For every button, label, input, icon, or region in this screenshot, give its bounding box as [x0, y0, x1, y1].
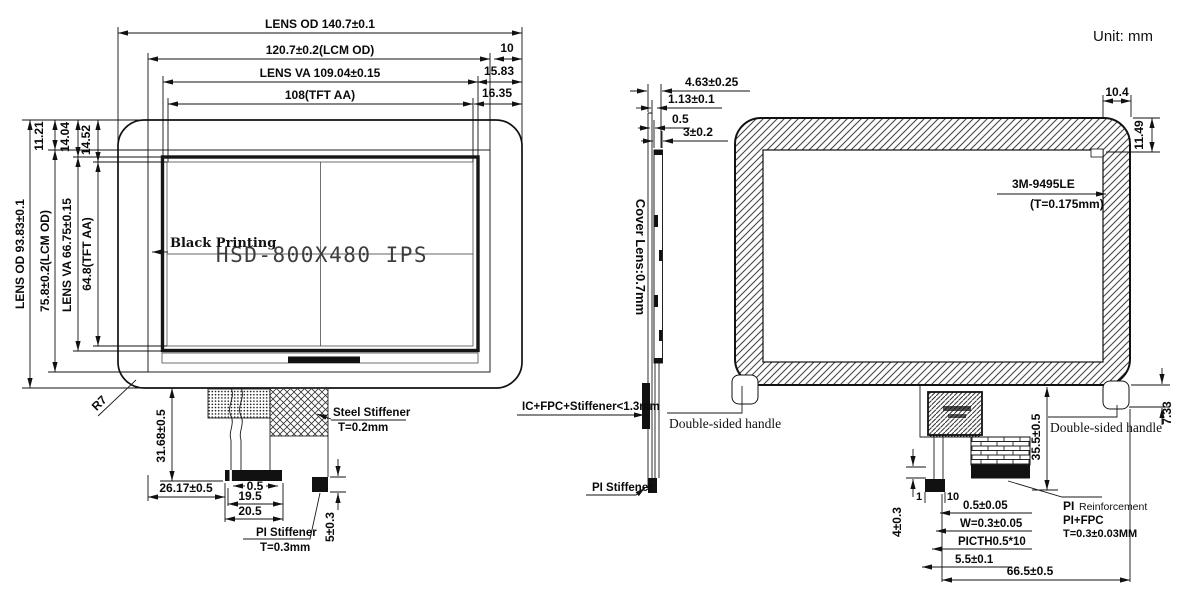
pi-stiffener-block [312, 477, 328, 492]
dim-fpc-offset: 26.17±0.5 [159, 481, 213, 495]
dim-fold: 4±0.3 [890, 507, 904, 537]
dim-pin-width: 0.5±0.05 [963, 500, 1008, 512]
front-top-dimensions: LENS OD 140.7±0.1 120.7±0.2(LCM OD) 10 L… [118, 17, 522, 162]
corner-radius-label: R7 [89, 393, 110, 414]
alignment-notch [1091, 149, 1103, 157]
dim-lcm-thickness: 1.13±0.1 [668, 92, 715, 106]
ic-block [208, 389, 270, 418]
pin-10-label: 10 [947, 491, 959, 503]
dim-contact-width: 19.5 [238, 489, 262, 503]
black-printing-label: Black Printing [170, 236, 276, 251]
handle-left-callout: Double-sided handle [667, 386, 781, 431]
pi-reinforcement-label-2: Reinforcement [1079, 501, 1147, 513]
steel-stiffener-callout: Steel Stiffener T=0.2mm [317, 407, 411, 434]
steel-stiffener-label: Steel Stiffener [333, 407, 411, 419]
fpc-height-dimension: 35.5±0.5 [1029, 387, 1058, 490]
pi-reinforcement-label-1: PI [1063, 499, 1074, 513]
steel-stiffener-block [270, 388, 328, 436]
dim-border-height: 11.49 [1132, 120, 1146, 150]
dim-trace-width: W=0.3±0.05 [960, 518, 1023, 530]
connector-slot [230, 470, 232, 481]
dim-fpc-height: 35.5±0.5 [1029, 413, 1043, 460]
dim-module-thickness: 3±0.2 [683, 125, 713, 139]
dim-fpc-center: 66.5±0.5 [1007, 564, 1054, 578]
dim-lens-od-height: LENS OD 93.83±0.1 [13, 199, 27, 309]
pi-stiffener-label: PI Stiffener [256, 527, 317, 539]
dim-total-thickness: 4.63±0.25 [685, 75, 739, 89]
side-pi-stiffener-label: PI Stiffener [592, 482, 653, 494]
dim-tft-aa-height: 64.8(TFT AA) [80, 217, 94, 291]
back-view: 1 10 10.4 11.49 3M-9495LE (T=0.175mm) Do… [667, 85, 1174, 582]
dim-lens-va-height: LENS VA 66.75±0.15 [60, 198, 74, 312]
dim-offset-1583: 15.83 [484, 64, 514, 78]
pi-thickness-label: T=0.3±0.03MM [1063, 528, 1137, 540]
fpc-contact-block [925, 479, 945, 492]
unit-label: Unit: mm [1093, 28, 1153, 45]
dim-offset-1452: 14.52 [79, 125, 93, 155]
handle-right-callout: Double-sided handle [1048, 405, 1162, 435]
dim-gap: 0.5 [672, 112, 689, 126]
handle-left-label: Double-sided handle [669, 416, 781, 431]
fpc-brick-block [971, 437, 1030, 465]
dim-pitch: PICTH0.5*10 [958, 536, 1026, 548]
dim-fpc-length: 31.68±0.5 [154, 409, 168, 463]
pi-stiffener-thickness: T=0.3mm [260, 542, 310, 554]
steel-stiffener-thickness: T=0.2mm [338, 422, 388, 434]
dim-lcm-od-width: 120.7±0.2(LCM OD) [266, 43, 375, 57]
fpc-black-strip [971, 466, 1030, 479]
pin-1-label: 1 [916, 491, 922, 503]
pi-fpc-label: PI+FPC [1063, 515, 1104, 527]
handle-tab-left [732, 375, 758, 404]
tape-thickness: (T=0.175mm) [1030, 197, 1104, 211]
dim-offset-1404: 14.04 [58, 122, 72, 152]
front-left-dimensions: LENS OD 93.83±0.1 75.8±0.2(LCM OD) 11.21… [13, 120, 167, 388]
back-fpc-assembly: 1 10 [916, 385, 1030, 503]
handle-drop-dimension: 7.33 [1129, 368, 1174, 425]
dim-handle-drop: 7.33 [1160, 401, 1174, 425]
drawing-sheet: HSD-800X480 IPS LENS OD 140.7±0.1 120.7±… [0, 0, 1200, 596]
handle-tab-right [1103, 381, 1129, 409]
dim-tail-offset: 5.5±0.1 [955, 554, 994, 566]
front-view: HSD-800X480 IPS LENS OD 140.7±0.1 120.7±… [13, 17, 522, 554]
dim-offset-1635: 16.35 [482, 86, 512, 100]
dim-stiffener-height: 5±0.3 [323, 512, 337, 542]
dim-offset-1121: 11.21 [32, 121, 46, 151]
fpc-hatched-block [928, 392, 982, 435]
cover-lens-label: Cover Lens:0.7mm [633, 199, 648, 315]
ic-fpc-label: IC+FPC+Stiffener<1.3mm [522, 401, 660, 413]
dim-lcm-od-height: 75.8±0.2(LCM OD) [38, 210, 52, 312]
dim-offset-10: 10 [500, 41, 514, 55]
dim-lens-od-width: LENS OD 140.7±0.1 [265, 17, 375, 31]
dim-border-width: 10.4 [1105, 85, 1129, 99]
lcd-module-drawing: HSD-800X480 IPS LENS OD 140.7±0.1 120.7±… [0, 0, 1200, 596]
tape-label: 3M-9495LE [1012, 177, 1075, 191]
dim-connector-width: 20.5 [238, 504, 262, 518]
side-view: 4.63±0.25 1.13±0.1 0.5 3±0.2 Cover Lens:… [517, 75, 750, 495]
bottom-contact-bar [288, 357, 360, 364]
dim-lens-va-width: LENS VA 109.04±0.15 [260, 66, 381, 80]
dim-tft-aa-width: 108(TFT AA) [285, 88, 355, 102]
fpc-tail [208, 388, 328, 492]
handle-right-label: Double-sided handle [1050, 420, 1162, 435]
